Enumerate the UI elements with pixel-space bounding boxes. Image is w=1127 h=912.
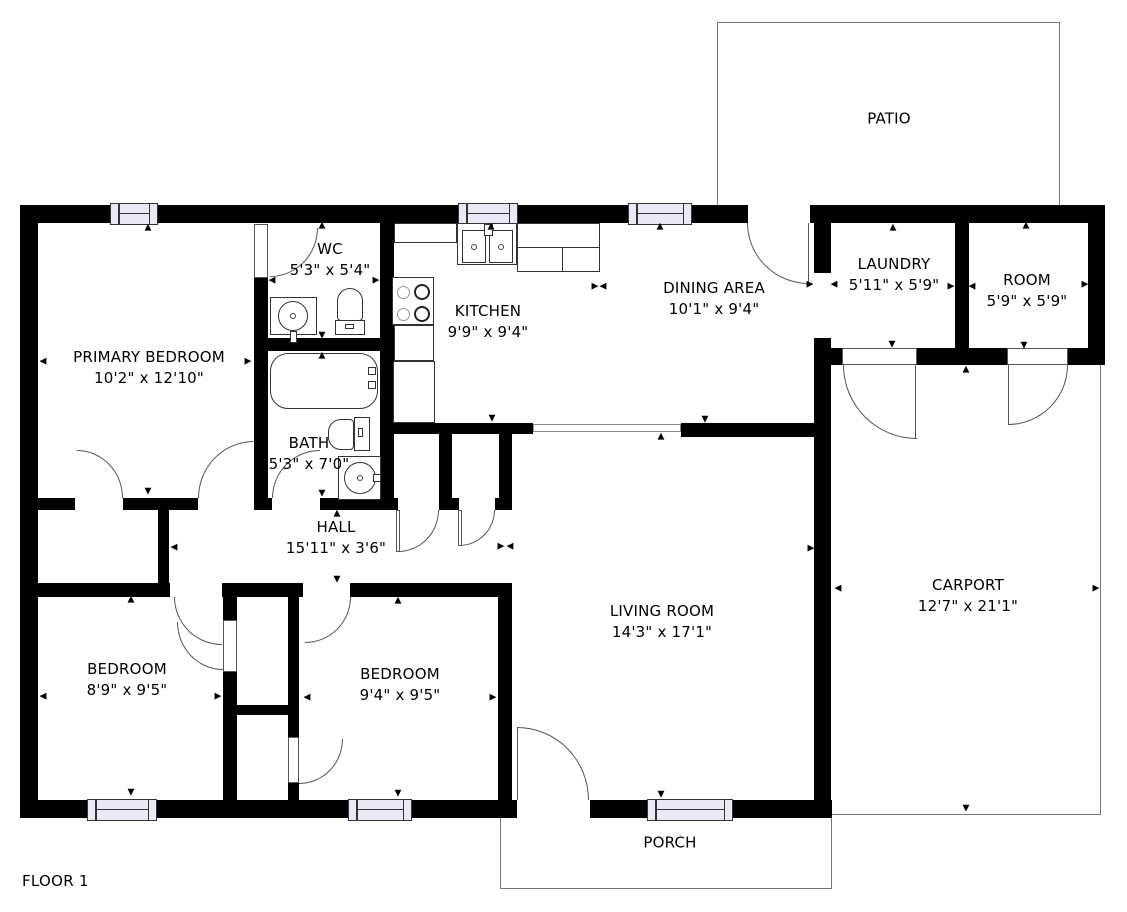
room-dims: 5'9" x 5'9" xyxy=(987,291,1068,312)
sink-drain-icon xyxy=(498,244,504,250)
door-leaf xyxy=(223,620,237,672)
wall-segment xyxy=(495,498,512,510)
sink-drain-icon xyxy=(357,475,363,481)
room-label-room: ROOM 5'9" x 5'9" xyxy=(987,270,1068,312)
door-leaf xyxy=(254,224,268,278)
marker-down-icon: ▼ xyxy=(334,576,341,585)
door-threshold xyxy=(1007,348,1068,365)
door-arc xyxy=(398,510,439,552)
door-arc xyxy=(177,622,223,670)
room-label-hall: HALL 15'11" x 3'6" xyxy=(286,517,386,559)
marker-right-icon: ▶ xyxy=(490,694,497,703)
burner-icon xyxy=(414,284,430,300)
marker-up-icon: ▲ xyxy=(658,433,665,442)
wall-segment xyxy=(223,672,237,801)
window xyxy=(348,799,412,821)
room-name: BEDROOM xyxy=(87,659,168,680)
room-dims: 5'3" x 7'0" xyxy=(269,454,350,475)
wc-toilet-bowl xyxy=(337,288,363,321)
wall-segment xyxy=(20,583,170,597)
marker-down-icon: ▼ xyxy=(963,805,970,814)
marker-up-icon: ▲ xyxy=(1023,222,1030,231)
marker-left-icon: ◀ xyxy=(304,694,311,703)
room-label-dining: DINING AREA 10'1" x 9'4" xyxy=(663,278,765,320)
wall-segment xyxy=(254,498,272,510)
room-label-bedroom-mid: BEDROOM 9'4" x 9'5" xyxy=(360,664,441,706)
room-label-laundry: LAUNDRY 5'11" x 5'9" xyxy=(849,254,940,296)
bathtub xyxy=(270,353,378,409)
wall-segment xyxy=(288,783,299,801)
wall-segment xyxy=(1088,223,1105,365)
room-dims: 9'9" x 9'4" xyxy=(448,322,529,343)
room-name: DINING AREA xyxy=(663,278,765,299)
marker-up-icon: ▲ xyxy=(334,510,341,519)
door-arc xyxy=(198,441,254,498)
room-label-bath: BATH 5'3" x 7'0" xyxy=(269,433,350,475)
sink-drain-icon xyxy=(290,313,296,319)
room-name: LAUNDRY xyxy=(849,254,940,275)
bath-toilet-flush-icon xyxy=(358,428,363,437)
marker-up-icon: ▲ xyxy=(890,224,897,233)
marker-up-icon: ▲ xyxy=(395,597,402,606)
marker-up-icon: ▲ xyxy=(145,224,152,233)
marker-right-icon: ▶ xyxy=(948,283,955,292)
window xyxy=(647,799,733,821)
room-label-wc: WC 5'3" x 5'4" xyxy=(290,239,371,281)
marker-up-icon: ▲ xyxy=(319,352,326,361)
door-arc xyxy=(747,223,809,284)
wall-segment xyxy=(814,338,831,818)
kitchen-counter xyxy=(394,325,434,361)
door-arc xyxy=(299,739,343,784)
porch-outline xyxy=(500,818,832,889)
marker-right-icon: ▶ xyxy=(1093,585,1100,594)
room-name: BATH xyxy=(269,433,350,454)
room-dims: 12'7" x 21'1" xyxy=(918,596,1018,617)
door-arc xyxy=(77,450,123,498)
door-arc xyxy=(517,727,589,800)
tub-faucet-icon xyxy=(368,381,376,389)
kitchen-counter xyxy=(394,223,457,243)
wall-segment xyxy=(38,498,75,510)
marker-left-icon: ◀ xyxy=(835,585,842,594)
marker-right-icon: ▶ xyxy=(1082,281,1089,290)
marker-right-icon: ▶ xyxy=(215,693,222,702)
marker-down-icon: ▼ xyxy=(395,790,402,799)
marker-down-icon: ▼ xyxy=(702,416,709,425)
room-dims: 10'1" x 9'4" xyxy=(663,299,765,320)
room-dims: 14'3" x 17'1" xyxy=(610,622,714,643)
room-dims: 8'9" x 9'5" xyxy=(87,680,168,701)
tub-faucet-icon xyxy=(368,367,376,375)
marker-up-icon: ▲ xyxy=(657,223,664,232)
room-label-living: LIVING ROOM 14'3" x 17'1" xyxy=(610,601,714,643)
room-label-primary-bedroom: PRIMARY BEDROOM 10'2" x 12'10" xyxy=(73,347,225,389)
floor-title: FLOOR 1 xyxy=(22,872,89,890)
wall-segment xyxy=(498,583,512,801)
room-name: PRIMARY BEDROOM xyxy=(73,347,225,368)
marker-left-icon: ◀ xyxy=(269,277,276,286)
wc-sink-pedestal xyxy=(290,331,297,343)
marker-down-icon: ▼ xyxy=(889,341,896,350)
burner-icon xyxy=(414,306,430,322)
room-name: PATIO xyxy=(867,110,911,128)
marker-down-icon: ▼ xyxy=(319,490,326,499)
wall-segment xyxy=(955,223,969,348)
room-label-kitchen: KITCHEN 9'9" x 9'4" xyxy=(448,301,529,343)
marker-up-icon: ▲ xyxy=(319,222,326,231)
marker-right-icon: ▶ xyxy=(373,277,380,286)
room-name: ROOM xyxy=(987,270,1068,291)
marker-right-icon: ▶ xyxy=(592,283,599,292)
marker-left-icon: ◀ xyxy=(40,358,47,367)
wall-segment xyxy=(439,498,459,510)
marker-up-icon: ▲ xyxy=(128,596,135,605)
room-label-bedroom-left: BEDROOM 8'9" x 9'5" xyxy=(87,659,168,701)
marker-right-icon: ▶ xyxy=(807,281,814,290)
room-name: CARPORT xyxy=(918,575,1018,596)
door-leaf xyxy=(288,737,299,783)
floor-plan: PATIO PRIMARY BEDROOM 10'2" x 12'10" WC … xyxy=(0,0,1127,912)
marker-down-icon: ▼ xyxy=(128,789,135,798)
marker-down-icon: ▼ xyxy=(1021,342,1028,351)
door-arc xyxy=(459,510,495,546)
room-name: WC xyxy=(290,239,371,260)
wall-segment xyxy=(917,348,1007,365)
room-dims: 9'4" x 9'5" xyxy=(360,685,441,706)
wall-segment xyxy=(20,205,38,818)
marker-left-icon: ◀ xyxy=(40,693,47,702)
wall-segment xyxy=(223,597,237,620)
marker-down-icon: ▼ xyxy=(658,791,665,800)
marker-down-icon: ▼ xyxy=(145,488,152,497)
room-name: HALL xyxy=(286,517,386,538)
marker-left-icon: ◀ xyxy=(507,543,514,552)
counter-line xyxy=(517,247,600,248)
marker-left-icon: ◀ xyxy=(600,283,607,292)
room-label-carport: CARPORT 12'7" x 21'1" xyxy=(918,575,1018,617)
marker-up-icon: ▲ xyxy=(488,223,495,232)
door-arc xyxy=(305,597,351,643)
wall-segment xyxy=(814,223,831,273)
window xyxy=(87,799,157,821)
wall-segment xyxy=(158,510,169,583)
marker-left-icon: ◀ xyxy=(171,544,178,553)
burner-icon xyxy=(397,308,410,321)
marker-down-icon: ▼ xyxy=(319,332,326,341)
room-label-porch: PORCH xyxy=(643,833,696,854)
room-name: BEDROOM xyxy=(360,664,441,685)
wall-segment xyxy=(380,423,533,434)
room-name: KITCHEN xyxy=(448,301,529,322)
counter-line xyxy=(562,247,563,272)
wall-segment xyxy=(814,348,842,365)
burner-icon xyxy=(397,286,410,299)
room-name: PORCH xyxy=(643,834,696,852)
room-dims: 10'2" x 12'10" xyxy=(73,368,225,389)
room-label-patio: PATIO xyxy=(867,109,911,130)
room-dims: 5'3" x 5'4" xyxy=(290,260,371,281)
wall-segment xyxy=(123,498,198,510)
wall-segment xyxy=(254,278,268,500)
wc-toilet-flush-icon xyxy=(345,324,354,329)
sink-drain-icon xyxy=(471,244,477,250)
marker-left-icon: ◀ xyxy=(969,283,976,292)
wall-segment xyxy=(499,434,512,498)
wall-segment xyxy=(350,583,512,597)
wall-segment xyxy=(380,223,394,500)
wall-segment xyxy=(810,205,1105,223)
wall-segment xyxy=(237,705,288,715)
marker-right-icon: ▶ xyxy=(245,358,252,367)
wall-segment xyxy=(681,423,814,437)
room-dims: 5'11" x 5'9" xyxy=(849,275,940,296)
marker-right-icon: ▶ xyxy=(808,545,815,554)
wall-segment xyxy=(288,597,299,737)
room-dims: 15'11" x 3'6" xyxy=(286,538,386,559)
wall-segment xyxy=(1068,348,1105,365)
dishwasher xyxy=(393,361,435,423)
room-name: LIVING ROOM xyxy=(610,601,714,622)
door-threshold xyxy=(842,348,917,365)
marker-left-icon: ◀ xyxy=(831,281,838,290)
wall-segment xyxy=(222,583,303,597)
bath-faucet-icon xyxy=(373,474,381,482)
marker-right-icon: ▶ xyxy=(498,543,505,552)
wall-segment xyxy=(439,434,452,498)
marker-down-icon: ▼ xyxy=(489,415,496,424)
marker-up-icon: ▲ xyxy=(963,366,970,375)
